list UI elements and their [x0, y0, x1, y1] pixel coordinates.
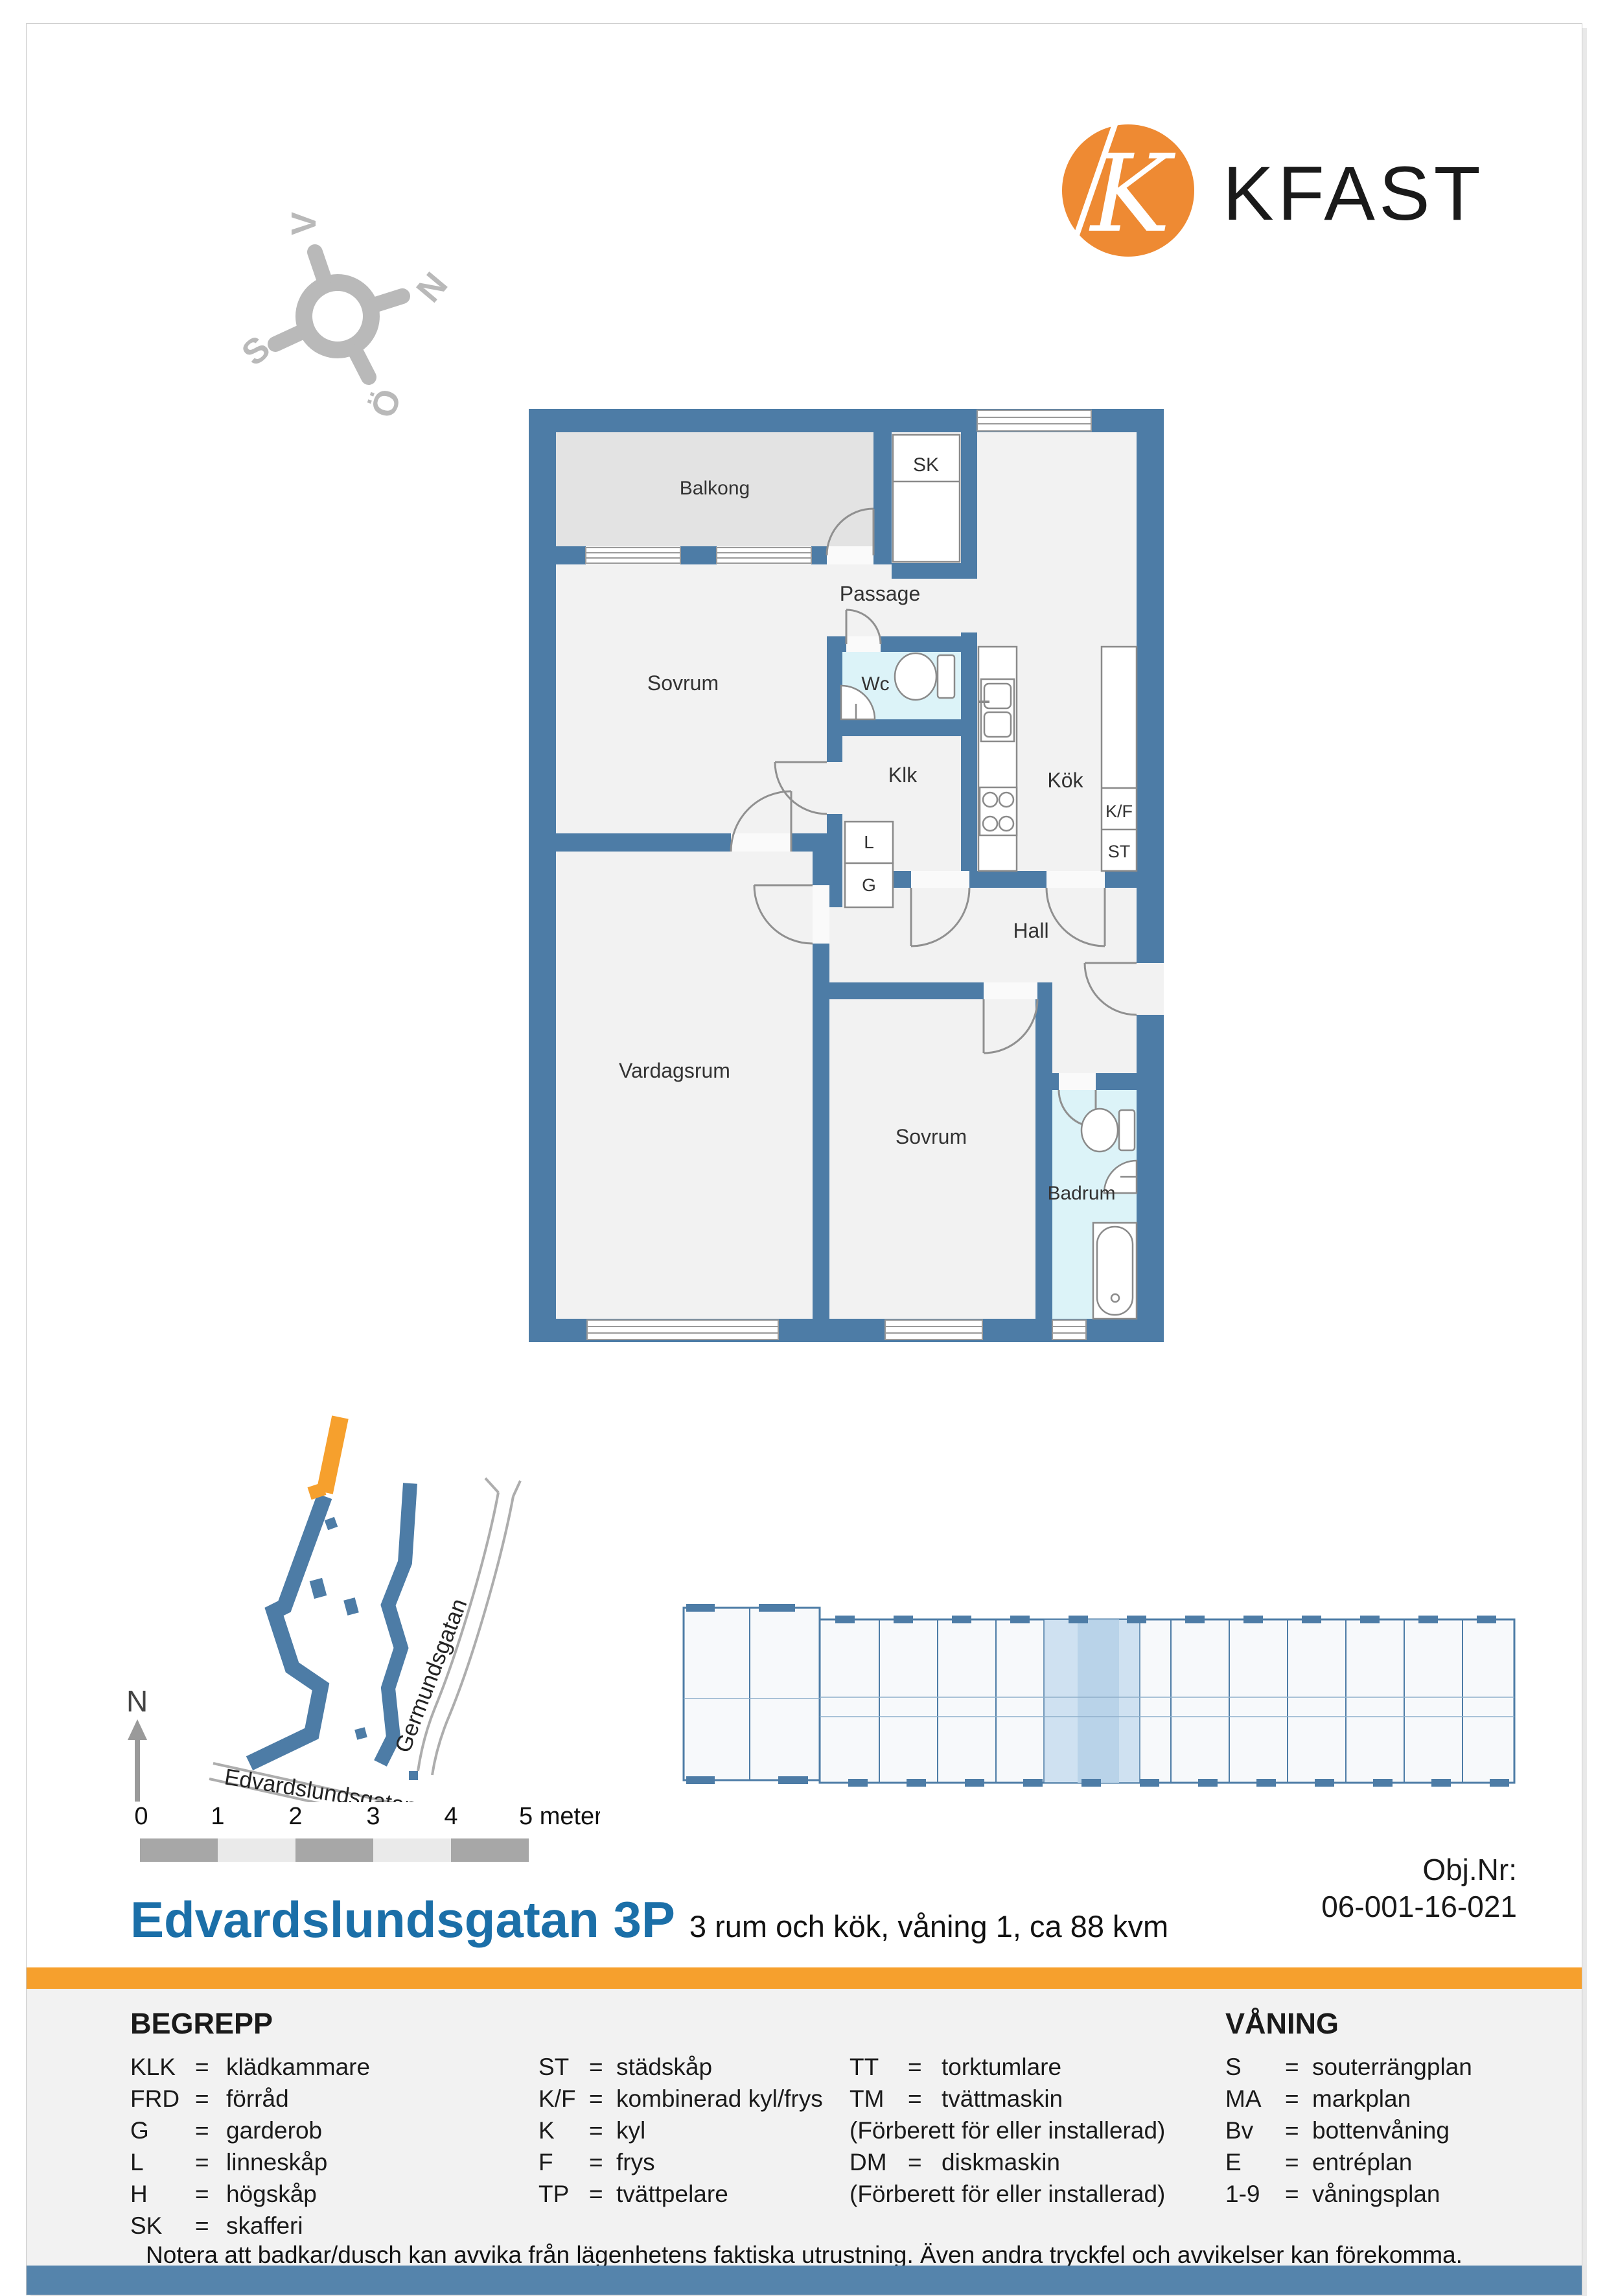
entry-door-gap — [1137, 963, 1164, 1015]
legend-row: K=kyl — [538, 2115, 823, 2146]
vaning-heading: VÅNING — [1225, 2007, 1339, 2041]
legend-row: DM=diskmaskin — [850, 2146, 1165, 2178]
scale-tick-0: 0 — [134, 1803, 148, 1830]
scale-bar: 0 1 2 3 4 5 meter — [133, 1800, 600, 1871]
legend-col-vaning: S=souterrängplan MA=markplan Bv=bottenvå… — [1225, 2051, 1472, 2210]
north-arrow-icon: N — [126, 1684, 148, 1802]
legend-row: 1-9=våningsplan — [1225, 2178, 1472, 2210]
document-page: K KFAST V N S Ö — [26, 23, 1582, 2295]
scale-tick-4: 4 — [444, 1803, 457, 1830]
site-map: N Germundsgatan Edvardslundsgatan — [98, 1349, 590, 1802]
label-passage: Passage — [840, 582, 921, 605]
compass-n: N — [409, 265, 455, 309]
label-sovrum1: Sovrum — [647, 671, 719, 695]
scale-tick-1: 1 — [211, 1803, 224, 1830]
logo-wordmark: KFAST — [1223, 151, 1485, 237]
legend-col1: KLK=klädkammare FRD=förråd G=garderob L=… — [130, 2051, 370, 2242]
label-kf: K/F — [1105, 802, 1133, 821]
compass-o: Ö — [364, 384, 410, 423]
label-balkong: Balkong — [680, 478, 750, 499]
scale-tick-3: 3 — [366, 1803, 380, 1830]
street-labels: Germundsgatan Edvardslundsgatan — [223, 1595, 472, 1802]
street-edvardslundsgatan: Edvardslundsgatan — [223, 1764, 419, 1802]
fridge-cabinet-strip — [1102, 647, 1137, 871]
wc-toilet-bowl — [895, 653, 936, 700]
label-hall: Hall — [1013, 919, 1048, 942]
wc-toilet-tank — [938, 655, 954, 698]
legend-row: SK=skafferi — [130, 2210, 370, 2242]
legend-col2: ST=städskåp K/F=kombinerad kyl/frys K=ky… — [538, 2051, 823, 2210]
object-number-label: Obj.Nr: — [1321, 1851, 1517, 1888]
street-germundsgatan: Germundsgatan — [390, 1595, 472, 1756]
badrum-toilet-bowl — [1081, 1109, 1118, 1152]
scale-tick-2: 2 — [288, 1803, 302, 1830]
compass-v: V — [284, 212, 323, 235]
legend-row: Bv=bottenvåning — [1225, 2115, 1472, 2146]
compass-s: S — [235, 329, 277, 373]
legend-row: E=entréplan — [1225, 2146, 1472, 2178]
label-badrum: Badrum — [1047, 1183, 1115, 1204]
compass-rose-icon: V N S Ö — [214, 182, 474, 441]
footer-blue-bar — [27, 2266, 1582, 2295]
legend-row: FRD=förråd — [130, 2083, 370, 2115]
object-number-value: 06-001-16-021 — [1321, 1888, 1517, 1925]
label-g: G — [862, 875, 876, 895]
legend-row: F=frys — [538, 2146, 823, 2178]
legend-row: G=garderob — [130, 2115, 370, 2146]
object-number-block: Obj.Nr: 06-001-16-021 — [1321, 1851, 1517, 1925]
legend-note-row: (Förberett för eller installerad) — [850, 2115, 1165, 2146]
page-title: Edvardslundsgatan 3P — [130, 1890, 675, 1949]
north-label: N — [126, 1684, 148, 1718]
kfast-logo: K KFAST — [1031, 98, 1523, 286]
legend-row: H=högskåp — [130, 2178, 370, 2210]
logo-k: K — [1089, 132, 1176, 256]
label-kok: Kök — [1047, 769, 1083, 792]
legend-row: TT=torktumlare — [850, 2051, 1165, 2083]
disclaimer-note: Notera att badkar/dusch kan avvika från … — [27, 2242, 1582, 2269]
legend-col3: TT=torktumlare TM=tvättmaskin (Förberett… — [850, 2051, 1165, 2210]
legend-row: S=souterrängplan — [1225, 2051, 1472, 2083]
legend-row: KLK=klädkammare — [130, 2051, 370, 2083]
label-st: ST — [1108, 842, 1131, 861]
title-row: Edvardslundsgatan 3P 3 rum och kök, våni… — [130, 1890, 1168, 1949]
label-sovrum2: Sovrum — [896, 1125, 967, 1148]
legend-heading: BEGREPP — [130, 2007, 273, 2041]
legend-row: ST=städskåp — [538, 2051, 823, 2083]
label-vardagsrum: Vardagsrum — [619, 1059, 730, 1082]
label-l: L — [864, 832, 874, 852]
legend-row: MA=markplan — [1225, 2083, 1472, 2115]
site-highlight — [307, 1417, 340, 1500]
scale-tick-5: 5 meter — [519, 1803, 600, 1830]
legend-row: TM=tvättmaskin — [850, 2083, 1165, 2115]
page-subtitle: 3 rum och kök, våning 1, ca 88 kvm — [689, 1908, 1168, 1944]
label-wc: Wc — [861, 673, 889, 695]
legend-row: TP=tvättpelare — [538, 2178, 823, 2210]
legend-row: K/F=kombinerad kyl/frys — [538, 2083, 823, 2115]
bathtub — [1093, 1223, 1137, 1319]
scale-bar-segments — [140, 1838, 529, 1862]
building-overview — [681, 1588, 1517, 1802]
label-sk: SK — [913, 454, 939, 476]
legend-section: BEGREPP VÅNING KLK=klädkammare FRD=förrå… — [27, 1989, 1582, 2266]
label-klk: Klk — [888, 763, 918, 787]
legend-note-row: (Förberett för eller installerad) — [850, 2178, 1165, 2210]
badrum-toilet-tank — [1119, 1110, 1135, 1150]
apartment-floorplan: Balkong Passage SK Sovrum Wc Klk Kök K/F… — [519, 409, 1173, 1342]
legend-row: L=linneskåp — [130, 2146, 370, 2178]
orange-divider-bar — [27, 1967, 1582, 1989]
